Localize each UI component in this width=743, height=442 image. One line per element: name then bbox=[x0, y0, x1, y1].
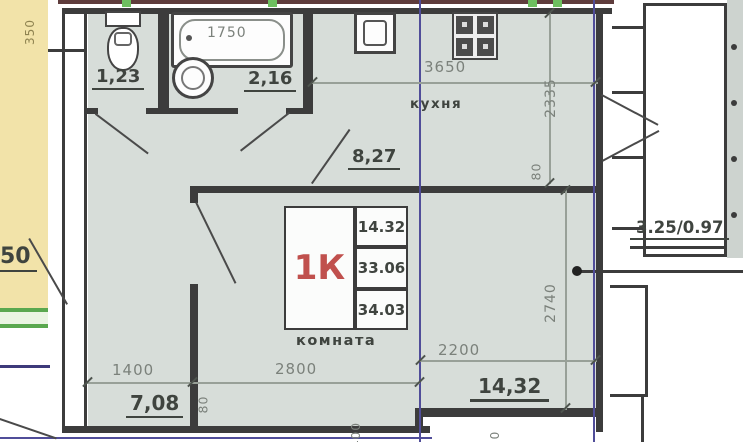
stove-burner-dot bbox=[483, 44, 488, 49]
dim-left-edge: 350 bbox=[23, 5, 37, 59]
dim-kitchen-depth: 2335 bbox=[543, 68, 559, 128]
stairwell-green-band bbox=[0, 308, 48, 328]
floor-cutout bbox=[417, 417, 598, 432]
railing-post-icon bbox=[731, 212, 737, 218]
survey-mark-icon bbox=[268, 0, 277, 7]
apartment-area-cell-total: 34.03 bbox=[355, 289, 408, 330]
railing-post-icon bbox=[731, 100, 737, 106]
survey-mark-icon bbox=[122, 0, 131, 7]
wall-room-bottom bbox=[415, 408, 600, 417]
area-label-room: 14,32 bbox=[470, 374, 549, 402]
railing-post-icon bbox=[731, 44, 737, 50]
grid-line-vertical-a bbox=[419, 0, 421, 442]
apartment-type-label: 1К bbox=[294, 248, 345, 288]
stove-burner-dot bbox=[462, 44, 467, 49]
railing-post-icon bbox=[731, 156, 737, 162]
wall-hall-bottom bbox=[62, 426, 430, 433]
toilet-tank bbox=[105, 11, 141, 27]
grid-stub-left bbox=[0, 365, 50, 368]
stove-burner-dot bbox=[462, 22, 467, 27]
room-label-room: комната bbox=[296, 333, 376, 349]
dimline-room-inner bbox=[420, 360, 597, 362]
survey-mark-icon bbox=[553, 0, 562, 7]
balcony-inner-edge bbox=[630, 246, 727, 249]
section-dot bbox=[572, 266, 582, 276]
area-label-bath: 2,16 bbox=[244, 68, 296, 92]
window-bay-bottom bbox=[610, 285, 648, 397]
area-label-toilet: 1,23 bbox=[92, 66, 144, 90]
toilet-seat-detail bbox=[114, 32, 132, 46]
dim-hall-wall: 80 bbox=[196, 390, 211, 420]
dimline-room-depth bbox=[565, 190, 567, 410]
wall-tick-left bbox=[48, 49, 86, 52]
dim-room-depth: 2740 bbox=[543, 273, 559, 333]
dim-kitchen-width: 3650 bbox=[424, 58, 466, 76]
area-label-balcony: 3.25/0.97 bbox=[630, 218, 729, 240]
dim-kitchen-wall: 80 bbox=[529, 157, 544, 187]
wall-wet-zone-b bbox=[146, 108, 238, 114]
bathtub-drain-icon bbox=[186, 35, 192, 41]
dim-bottom-a: 400 bbox=[349, 415, 363, 442]
dim-hall-width: 1400 bbox=[112, 361, 154, 379]
room-label-kitchen: кухня bbox=[410, 96, 462, 112]
dim-room-inner: 2200 bbox=[438, 341, 480, 359]
bay-bottom-stub bbox=[641, 397, 644, 442]
wall-wc-bath-divider bbox=[158, 8, 169, 110]
section-line-right bbox=[578, 270, 743, 273]
grid-line-vertical-b bbox=[593, 0, 595, 442]
area-label-adjacent: 50 bbox=[0, 244, 37, 272]
dim-room-width: 2800 bbox=[275, 360, 317, 378]
dim-bottom-b: 0 bbox=[488, 422, 502, 442]
wall-left-outer bbox=[62, 8, 65, 432]
area-label-kitchen: 8,27 bbox=[348, 146, 400, 170]
apartment-area-cell-apartment: 33.06 bbox=[355, 247, 408, 289]
dimline-hall-room bbox=[86, 382, 420, 384]
dim-tub-length: 1750 bbox=[207, 25, 247, 41]
wall-top bbox=[62, 8, 612, 14]
floor-plan: 1750 1,23 2,16 8,27 7,08 14,32 3.25/0.97… bbox=[0, 0, 743, 442]
washbasin-inner bbox=[181, 66, 205, 90]
area-label-hall: 7,08 bbox=[126, 391, 183, 418]
wall-right bbox=[596, 8, 603, 432]
wall-kitchen-room bbox=[190, 186, 598, 193]
wall-bath-kitchen-divider bbox=[303, 8, 313, 114]
survey-mark-icon bbox=[528, 0, 537, 7]
apartment-area-cell-living: 14.32 bbox=[355, 206, 408, 247]
wall-left-inner bbox=[84, 8, 87, 432]
apartment-type-cell: 1К bbox=[284, 206, 355, 330]
grid-line-horizontal bbox=[0, 437, 432, 439]
kitchen-sink-basin bbox=[363, 20, 387, 46]
stove-burner-dot bbox=[483, 22, 488, 27]
